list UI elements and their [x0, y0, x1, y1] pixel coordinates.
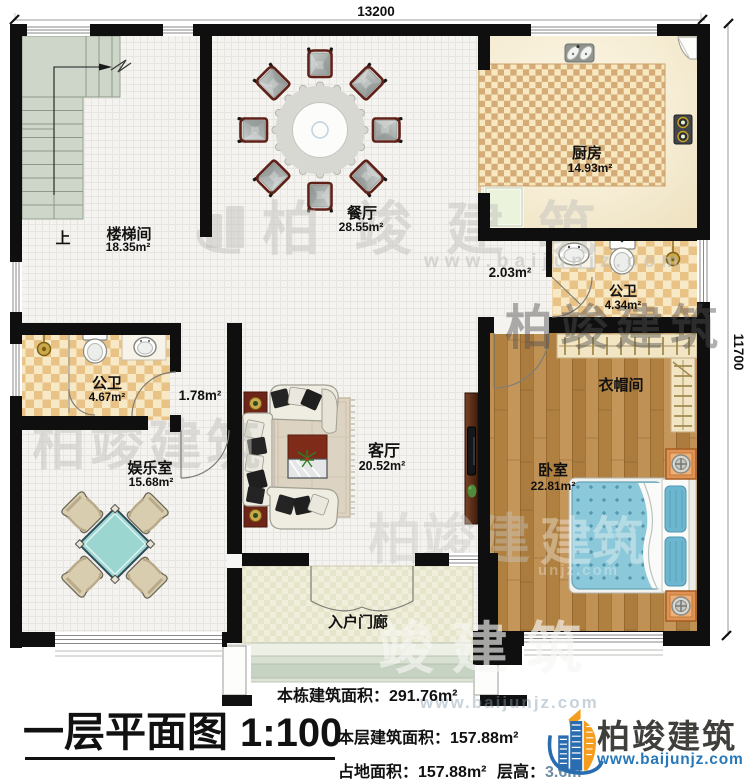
- svg-text:4.34m²: 4.34m²: [605, 300, 642, 312]
- svg-text:13200: 13200: [357, 4, 395, 19]
- svg-text:厨房: 厨房: [572, 144, 602, 162]
- svg-text:公卫: 公卫: [92, 375, 122, 392]
- svg-text:4.67m²: 4.67m²: [89, 392, 126, 404]
- svg-text:22.81m²: 22.81m²: [531, 479, 576, 493]
- svg-text:卧室: 卧室: [538, 461, 568, 479]
- svg-text:衣帽间: 衣帽间: [598, 376, 643, 394]
- svg-text:15.68m²: 15.68m²: [129, 475, 174, 489]
- svg-text:本栋建筑面积：291.76m²: 本栋建筑面积：291.76m²: [277, 686, 458, 705]
- svg-text:上: 上: [55, 230, 70, 247]
- svg-text:unjz.com: unjz.com: [538, 562, 619, 579]
- svg-text:2.03m²: 2.03m²: [489, 265, 532, 280]
- svg-text:竣建筑: 竣建筑: [378, 617, 600, 680]
- svg-text:www.baijunjz.com: www.baijunjz.com: [423, 251, 684, 272]
- svg-text:一层平面图: 一层平面图: [23, 709, 228, 755]
- svg-text:1.78m²: 1.78m²: [179, 388, 222, 403]
- svg-text:www.baijunjz.com: www.baijunjz.com: [596, 751, 744, 768]
- svg-text:11700: 11700: [731, 334, 746, 371]
- svg-text:占地面积：157.88m²: 占地面积：157.88m²: [338, 762, 487, 781]
- svg-text:18.35m²: 18.35m²: [106, 240, 151, 254]
- svg-text:28.55m²: 28.55m²: [339, 220, 384, 234]
- svg-text:1:100: 1:100: [240, 711, 342, 755]
- svg-text:14.93m²: 14.93m²: [568, 161, 613, 175]
- svg-text:客厅: 客厅: [368, 441, 400, 460]
- svg-text:20.52m²: 20.52m²: [359, 459, 406, 473]
- svg-text:公卫: 公卫: [609, 283, 637, 299]
- svg-text:入户门廊: 入户门廊: [328, 613, 388, 631]
- svg-text:本层建筑面积：157.88m²: 本层建筑面积：157.88m²: [338, 728, 519, 747]
- svg-text:柏竣建筑: 柏竣建筑: [597, 718, 737, 755]
